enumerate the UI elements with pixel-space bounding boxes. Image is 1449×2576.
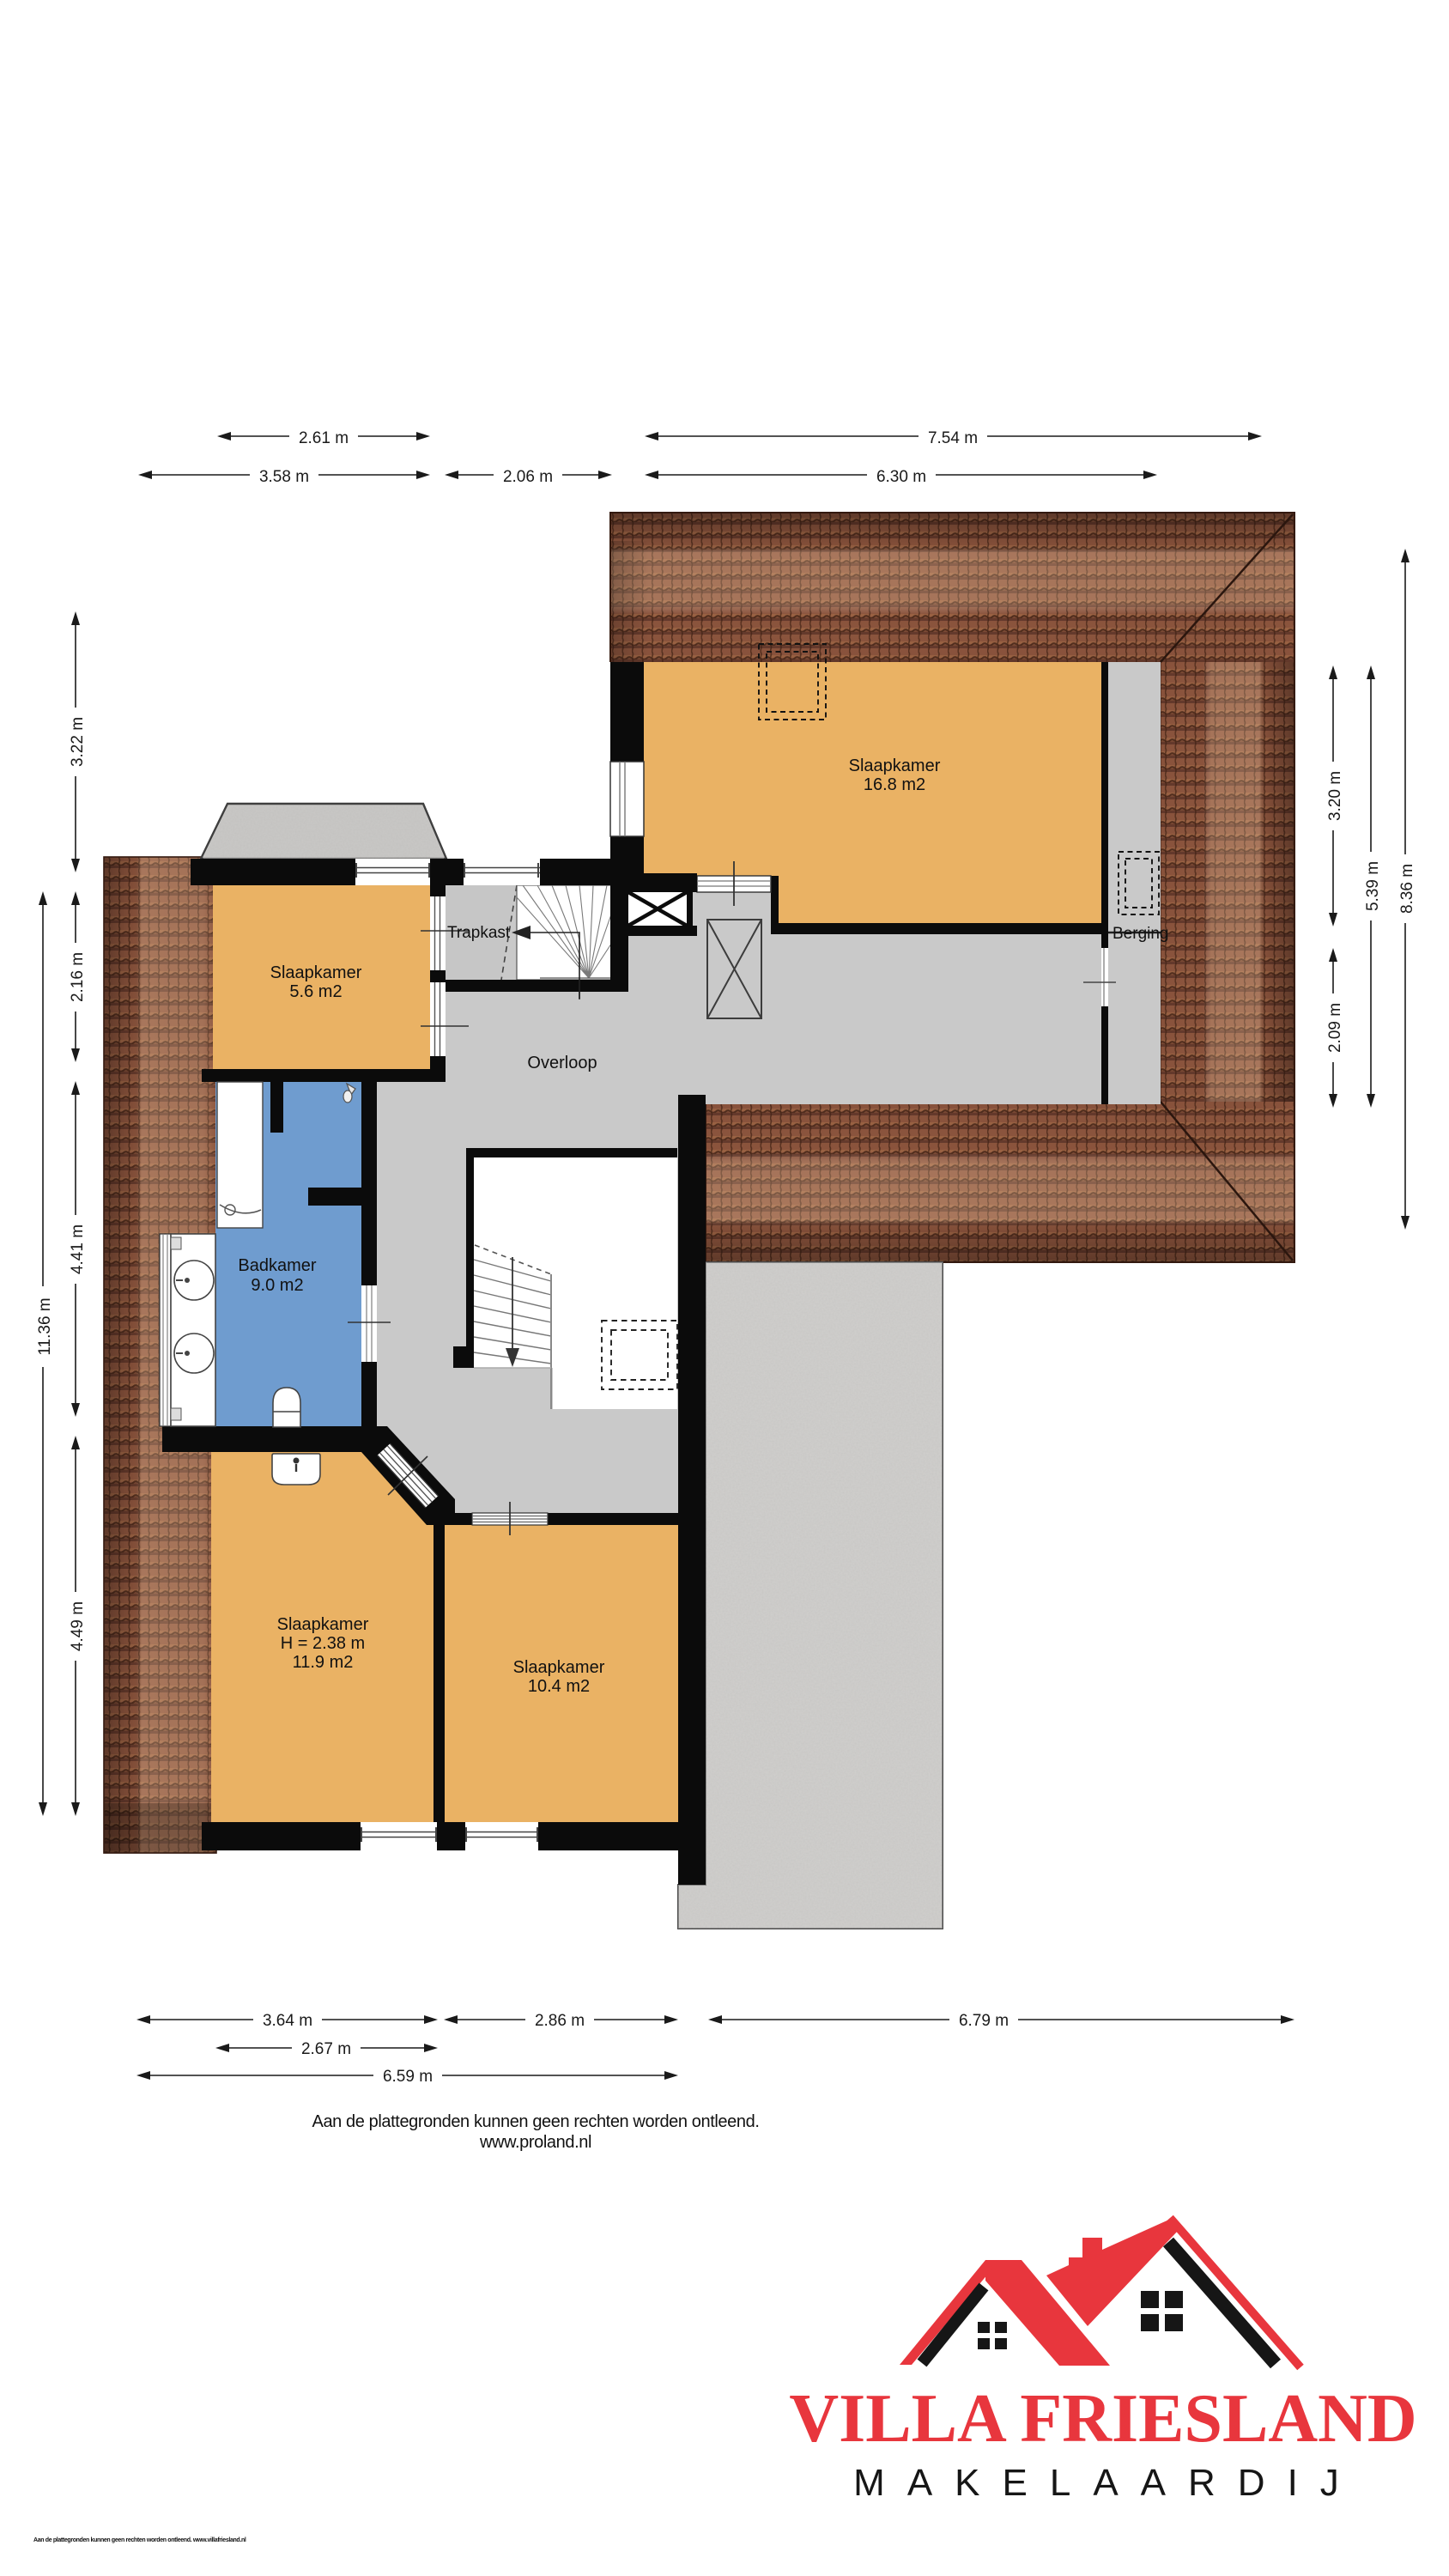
svg-text:H = 2.38 m: H = 2.38 m: [281, 1634, 365, 1653]
svg-text:4.41 m: 4.41 m: [69, 1224, 87, 1274]
svg-text:11.36 m: 11.36 m: [36, 1297, 54, 1355]
svg-text:2.61 m: 2.61 m: [299, 429, 349, 447]
svg-text:7.54 m: 7.54 m: [928, 429, 978, 447]
svg-text:2.06 m: 2.06 m: [503, 468, 553, 486]
svg-text:8.36 m: 8.36 m: [1398, 864, 1416, 914]
svg-text:Badkamer: Badkamer: [238, 1256, 316, 1275]
svg-text:3.22 m: 3.22 m: [69, 717, 87, 767]
svg-text:6.30 m: 6.30 m: [876, 468, 926, 486]
svg-text:16.8 m2: 16.8 m2: [864, 775, 925, 794]
svg-text:Trapkast: Trapkast: [447, 924, 511, 942]
svg-text:Slaapkamer: Slaapkamer: [277, 1615, 369, 1634]
svg-text:Slaapkamer: Slaapkamer: [270, 963, 362, 982]
svg-text:Aan de plattegronden kunnen ge: Aan de plattegronden kunnen geen rechten…: [312, 2112, 760, 2131]
svg-text:5.39 m: 5.39 m: [1364, 861, 1382, 911]
svg-text:MAKELAARDIJ: MAKELAARDIJ: [853, 2462, 1361, 2504]
svg-text:5.6 m2: 5.6 m2: [289, 982, 342, 1001]
svg-text:Berging: Berging: [1113, 925, 1169, 943]
svg-text:3.20 m: 3.20 m: [1326, 771, 1344, 821]
svg-text:Slaapkamer: Slaapkamer: [849, 756, 941, 775]
svg-text:Aan de plattegronden kunnen ge: Aan de plattegronden kunnen geen rechten…: [33, 2537, 246, 2543]
svg-text:Overloop: Overloop: [527, 1054, 597, 1072]
svg-text:3.58 m: 3.58 m: [259, 468, 309, 486]
svg-text:6.59 m: 6.59 m: [383, 2068, 433, 2086]
svg-text:2.09 m: 2.09 m: [1326, 1003, 1344, 1053]
svg-text:www.proland.nl: www.proland.nl: [479, 2133, 591, 2152]
svg-text:9.0 m2: 9.0 m2: [251, 1276, 303, 1295]
svg-text:3.64 m: 3.64 m: [263, 2012, 312, 2030]
svg-text:2.67 m: 2.67 m: [301, 2040, 351, 2058]
svg-text:Slaapkamer: Slaapkamer: [513, 1658, 605, 1677]
svg-text:6.79 m: 6.79 m: [959, 2012, 1009, 2030]
svg-text:4.49 m: 4.49 m: [69, 1601, 87, 1651]
svg-text:11.9 m2: 11.9 m2: [293, 1653, 354, 1672]
svg-text:2.16 m: 2.16 m: [69, 952, 87, 1002]
svg-text:2.86 m: 2.86 m: [535, 2012, 585, 2030]
svg-text:VILLA FRIESLAND: VILLA FRIESLAND: [789, 2381, 1416, 2457]
svg-text:10.4 m2: 10.4 m2: [528, 1677, 590, 1696]
